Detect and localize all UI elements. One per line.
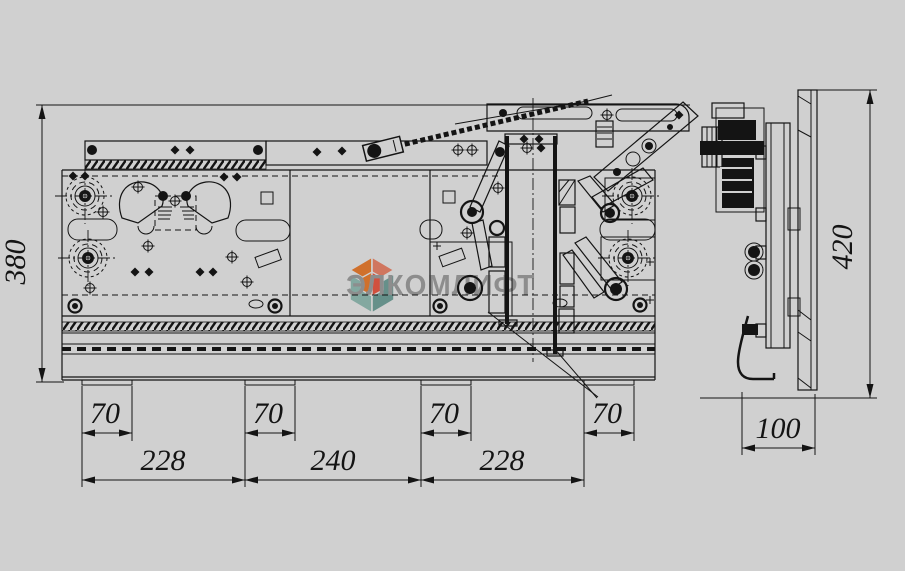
svg-text:228: 228: [141, 444, 186, 477]
front-view: [55, 95, 698, 398]
dim-span-1: 228: [82, 444, 245, 484]
side-view: [700, 90, 817, 390]
dim-side-width: 100: [742, 392, 815, 455]
lock-cluster: [700, 103, 764, 335]
svg-text:100: 100: [756, 412, 801, 445]
svg-text:70: 70: [429, 397, 459, 430]
svg-text:70: 70: [253, 397, 283, 430]
dim-bracket-3: 70: [421, 397, 471, 437]
dim-bracket-1: 70: [82, 397, 132, 437]
svg-text:420: 420: [826, 225, 859, 270]
svg-text:70: 70: [90, 397, 120, 430]
svg-text:228: 228: [480, 444, 525, 477]
dim-bracket-2: 70: [245, 397, 295, 437]
svg-text:240: 240: [311, 444, 356, 477]
bottom-rails: [62, 312, 655, 398]
dim-bracket-4: 70: [584, 397, 634, 437]
watermark-text: ЭЛКОМЛИФТ: [346, 270, 535, 303]
dim-span-3: 228: [421, 444, 584, 484]
drawing-canvas: 380 420 100 70: [0, 0, 905, 571]
dim-front-height: 380: [0, 105, 690, 382]
svg-text:70: 70: [592, 397, 622, 430]
dim-span-2: 240: [245, 444, 421, 484]
svg-text:380: 380: [0, 240, 32, 286]
watermark: ЭЛКОМЛИФТ: [346, 256, 535, 316]
top-rail: [62, 141, 546, 176]
